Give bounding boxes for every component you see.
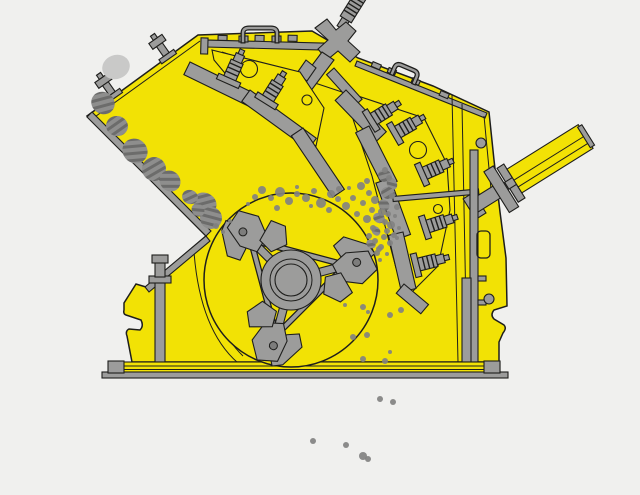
particle [275, 187, 285, 197]
particle [378, 208, 386, 216]
cylinder-mount-bolt [476, 138, 486, 148]
particle [258, 186, 266, 194]
particle [382, 219, 388, 225]
base-end-cap-left [108, 361, 124, 373]
particle [364, 332, 370, 338]
particle [369, 207, 375, 213]
particle [365, 456, 371, 462]
particle [376, 246, 382, 252]
particle [372, 238, 378, 244]
particle [228, 219, 232, 223]
particle [387, 312, 393, 318]
particle [393, 214, 397, 218]
particle [357, 182, 365, 190]
particle [294, 191, 300, 197]
base-sole-plate [102, 372, 508, 378]
particle [268, 195, 274, 201]
particle [385, 211, 391, 217]
particle [252, 194, 258, 200]
particle [388, 350, 392, 354]
particle [389, 193, 395, 199]
particle [386, 175, 392, 181]
particle [213, 223, 219, 229]
crusher-diagram-stage [0, 0, 640, 495]
particle [327, 190, 335, 198]
particle [387, 240, 393, 246]
particle [370, 225, 376, 231]
upper-apron-small-hole [302, 95, 312, 105]
particle [326, 207, 332, 213]
right-panel-channel [462, 278, 471, 362]
particle [336, 186, 342, 192]
particle [221, 230, 225, 234]
particle [381, 234, 387, 240]
particle [360, 356, 366, 362]
particle [316, 198, 326, 208]
particle [366, 310, 370, 314]
particle [285, 197, 293, 205]
particle [387, 221, 395, 229]
particle [343, 442, 349, 448]
particle [384, 228, 390, 234]
particle [363, 215, 371, 223]
particle [295, 185, 299, 189]
particle [394, 204, 400, 210]
particle [390, 399, 396, 405]
particle [342, 202, 350, 210]
right-panel-tab [478, 276, 486, 281]
impact-crusher-diagram [0, 0, 640, 495]
particle [311, 188, 317, 194]
particle [385, 252, 389, 256]
particle [309, 204, 313, 208]
right-foot-bolt [484, 294, 494, 304]
lower-apron-small-hole [434, 205, 443, 214]
particle [398, 307, 404, 313]
particle [360, 200, 366, 206]
particle [366, 190, 372, 196]
particle [382, 358, 388, 364]
particle [360, 304, 366, 310]
particle [364, 178, 370, 184]
upper-apron-pivot-hole [241, 61, 258, 78]
particle [302, 194, 310, 202]
rotor-shaft [275, 264, 307, 296]
particle [335, 196, 341, 202]
particle [246, 202, 250, 206]
particle [274, 205, 280, 211]
particle [371, 196, 379, 204]
lower-apron-pivot-hole [410, 142, 427, 159]
particle [310, 438, 316, 444]
particle [397, 226, 401, 230]
particle [354, 211, 360, 217]
cylinder-barrel [507, 125, 593, 193]
particle [350, 334, 356, 340]
particle [343, 303, 347, 307]
particle [350, 195, 356, 201]
particle [377, 396, 383, 402]
particle [378, 258, 382, 262]
particle [347, 186, 351, 190]
particle [382, 167, 388, 173]
base-end-cap-right [484, 361, 500, 373]
particle [366, 233, 372, 239]
particle [395, 236, 399, 240]
